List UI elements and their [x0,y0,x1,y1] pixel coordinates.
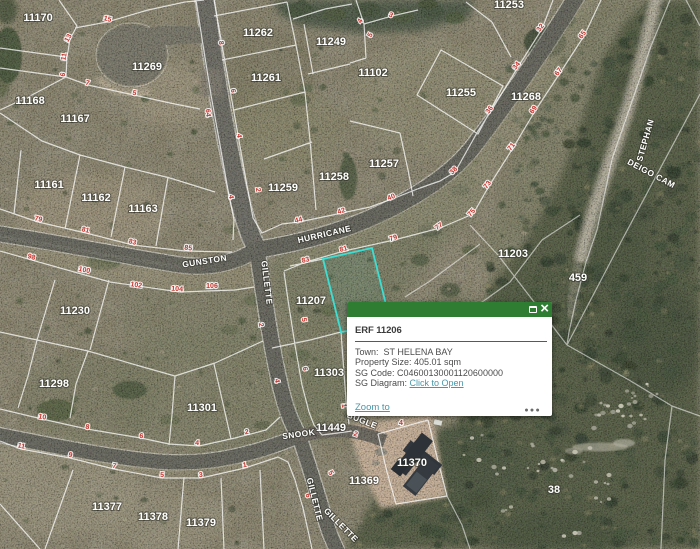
svg-text:11268: 11268 [511,91,541,103]
svg-text:11370: 11370 [397,457,427,469]
svg-text:11379: 11379 [186,517,216,529]
svg-text:11378: 11378 [138,511,168,523]
svg-text:459: 459 [569,272,587,284]
svg-text:4: 4 [195,440,199,447]
svg-text:64: 64 [204,109,212,117]
svg-text:104: 104 [171,286,183,294]
svg-text:6: 6 [229,89,236,94]
svg-text:11257: 11257 [369,158,399,170]
svg-text:11249: 11249 [316,36,346,48]
svg-text:11449: 11449 [316,422,346,434]
svg-text:11170: 11170 [23,12,52,24]
svg-text:38: 38 [548,484,560,496]
svg-text:11298: 11298 [39,378,69,390]
svg-text:4: 4 [227,195,234,200]
svg-text:11163: 11163 [128,203,157,215]
svg-text:8: 8 [217,41,224,46]
svg-text:11167: 11167 [60,113,89,125]
svg-text:4: 4 [235,134,242,139]
svg-text:85: 85 [184,245,193,253]
svg-text:11262: 11262 [243,27,273,39]
svg-text:11301: 11301 [187,402,217,414]
svg-text:11102: 11102 [358,67,387,79]
svg-text:11230: 11230 [60,305,90,317]
svg-text:3: 3 [199,472,203,479]
svg-text:10: 10 [38,413,47,421]
svg-text:11303: 11303 [314,367,344,379]
svg-text:11258: 11258 [319,171,349,183]
svg-text:11269: 11269 [132,61,162,73]
svg-text:11203: 11203 [498,248,528,260]
svg-text:11162: 11162 [81,192,110,204]
svg-text:4: 4 [399,420,403,427]
svg-text:11168: 11168 [15,95,44,107]
svg-text:11207: 11207 [296,295,326,307]
svg-text:2: 2 [254,188,261,193]
svg-text:11259: 11259 [268,182,298,194]
svg-text:11255: 11255 [446,87,476,99]
svg-text:11: 11 [60,52,68,61]
svg-text:11377: 11377 [92,501,122,513]
svg-text:11253: 11253 [494,0,524,11]
svg-text:11369: 11369 [349,475,379,487]
svg-text:11161: 11161 [34,179,63,191]
svg-text:5: 5 [160,472,164,479]
svg-text:106: 106 [206,283,218,290]
svg-text:11261: 11261 [251,72,281,84]
